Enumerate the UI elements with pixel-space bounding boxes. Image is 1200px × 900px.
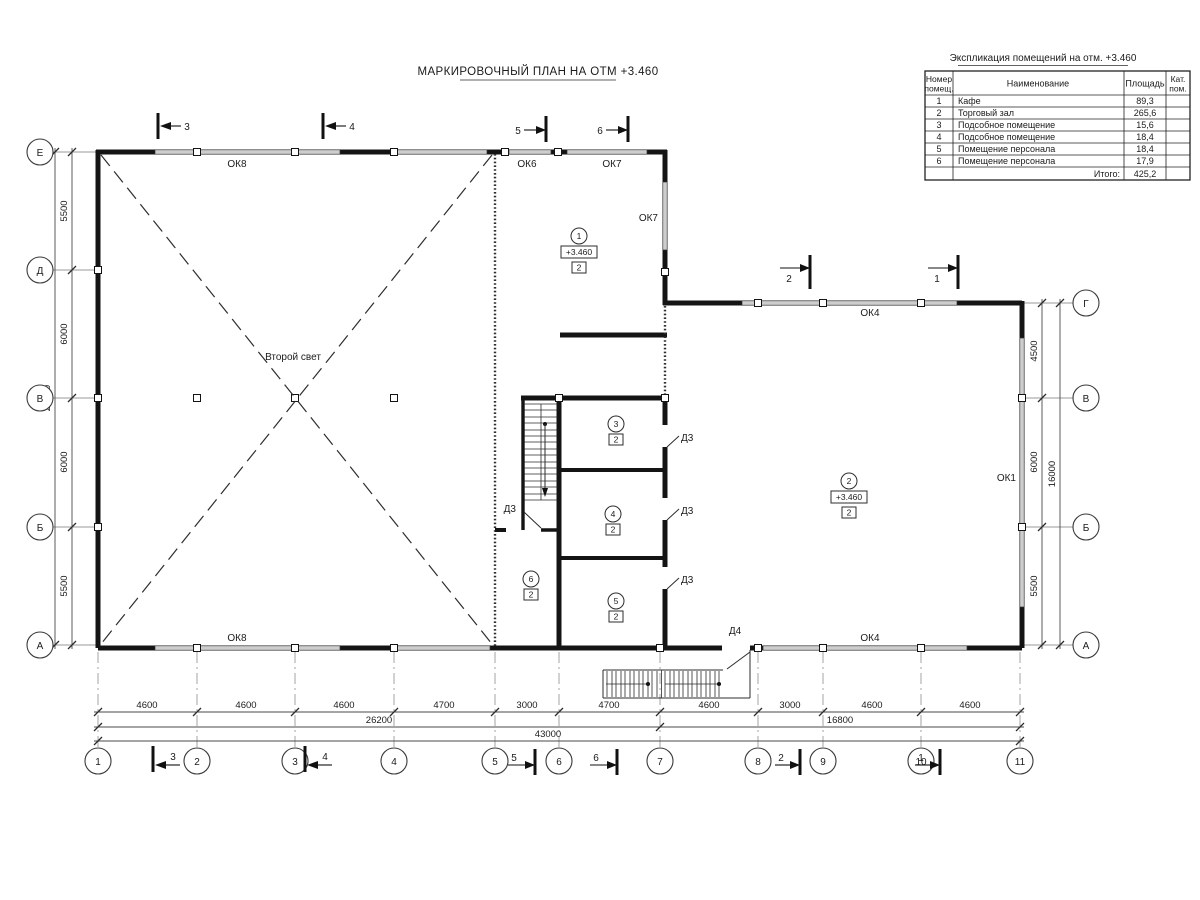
room2-number: 2: [847, 476, 852, 486]
total-label: Итого:: [1094, 169, 1120, 179]
axis-bubbles: Е Д В Б А Г В Б А 1 2 3 4 5 6 7 8 9 10 1…: [27, 139, 1099, 774]
dim-bottom-8: 4600: [861, 700, 882, 711]
axis-bottom-0: 1: [95, 757, 101, 768]
section-bottom-5: 5: [511, 753, 517, 764]
door-d3-room3-label: Д3: [681, 433, 694, 444]
dimension-texts: 5500 6000 6000 5500 23000 4500 6000 5500…: [42, 200, 1058, 740]
room2-category: 2: [847, 508, 852, 518]
section-bottom-3: 3: [170, 752, 176, 763]
room-markers: 1 +3.460 2 2 +3.460 2 3 2 4 2: [523, 228, 867, 622]
dim-bottom-2: 4600: [333, 700, 354, 711]
total-value: 425,2: [1134, 169, 1157, 179]
col-name: Наименование: [1007, 79, 1069, 89]
row4-name: Подсобное помещение: [958, 132, 1055, 142]
dim-bottom-total: 43000: [535, 729, 561, 740]
row6-area: 17,9: [1136, 156, 1154, 166]
room6-number: 6: [529, 574, 534, 584]
section-marks: 3 4 5 6 2 1 3 4 5 6 2 1: [153, 113, 958, 775]
table-row: 5 Помещение персонала 18,4: [936, 144, 1153, 154]
dim-left-0: 5500: [59, 200, 70, 221]
interior-stair: [525, 404, 558, 500]
window-ok4-top-label: ОК4: [860, 308, 880, 319]
section-bottom-6: 6: [593, 753, 599, 764]
row1-area: 89,3: [1136, 96, 1154, 106]
section-bottom-2: 2: [778, 753, 784, 764]
dim-bottom-6: 4600: [698, 700, 719, 711]
room4-number: 4: [611, 509, 616, 519]
axis-bottom-10: 11: [1015, 757, 1026, 768]
row5-name: Помещение персонала: [958, 144, 1055, 154]
axis-bottom-2: 3: [292, 757, 298, 768]
second-light-label: Второй свет: [265, 352, 321, 363]
dim-left-1: 6000: [59, 323, 70, 344]
dim-bottom-0: 4600: [136, 700, 157, 711]
dim-right-total: 16000: [1047, 461, 1058, 487]
section-bottom-4: 4: [322, 752, 328, 763]
axis-right-2: Б: [1083, 523, 1090, 534]
axis-left-4: А: [37, 641, 44, 652]
explication-title: Экспликация помещений на отм. +3.460: [950, 53, 1137, 64]
room3-category: 2: [614, 435, 619, 445]
drawing-title: МАРКИРОВОЧНЫЙ ПЛАН НА ОТМ +3.460: [417, 65, 658, 80]
col-cat-line1: Кат.: [1171, 74, 1186, 84]
window-ok7-side-label: ОК7: [639, 213, 659, 224]
axis-right-1: В: [1083, 394, 1090, 405]
dim-bottom-3: 4700: [433, 700, 454, 711]
table-row: 6 Помещение персонала 17,9: [936, 156, 1153, 166]
section-top-4: 4: [349, 122, 355, 133]
table-total-row: Итого: 425,2: [1094, 169, 1156, 179]
section-right-2: 2: [786, 274, 792, 285]
table-row: 3 Подсобное помещение 15,6: [936, 120, 1153, 130]
dim-left-2: 6000: [59, 451, 70, 472]
axis-left-2: В: [37, 394, 44, 405]
room2-elevation: +3.460: [836, 492, 863, 502]
axis-left-0: Е: [37, 148, 44, 159]
col-cat-line2: пом.: [1169, 84, 1187, 94]
section-top-5: 5: [515, 126, 521, 137]
row1-num: 1: [936, 96, 941, 106]
room-marker-2: 2 +3.460 2: [831, 473, 867, 518]
room6-category: 2: [529, 590, 534, 600]
section-right-1: 1: [934, 274, 940, 285]
table-row: 2 Торговый зал 265,6: [936, 108, 1156, 118]
door-d4-label: Д4: [729, 626, 742, 637]
row5-num: 5: [936, 144, 941, 154]
dim-right-2: 5500: [1029, 575, 1040, 596]
dim-right-0: 4500: [1029, 340, 1040, 361]
axis-right-3: А: [1083, 641, 1090, 652]
window-ok4-bottom-label: ОК4: [860, 633, 880, 644]
room5-category: 2: [614, 612, 619, 622]
room1-category: 2: [577, 263, 582, 273]
room-marker-5: 5 2: [608, 593, 624, 622]
axis-bottom-6: 7: [657, 757, 663, 768]
row4-num: 4: [936, 132, 941, 142]
row2-num: 2: [936, 108, 941, 118]
col-number-line1: Номер: [926, 74, 952, 84]
plan-title: МАРКИРОВОЧНЫЙ ПЛАН НА ОТМ +3.460: [417, 65, 658, 78]
table-row: 1 Кафе 89,3: [936, 96, 1153, 106]
window-ok8-bottom-label: ОК8: [227, 633, 247, 644]
row6-name: Помещение персонала: [958, 156, 1055, 166]
axis-left-3: Б: [37, 523, 44, 534]
dim-bottom-1: 4600: [235, 700, 256, 711]
dim-bottom-4: 3000: [516, 700, 537, 711]
axis-bottom-8: 9: [820, 757, 826, 768]
axis-bottom-3: 4: [391, 757, 397, 768]
col-area: Площадь: [1125, 79, 1164, 89]
row2-area: 265,6: [1134, 108, 1157, 118]
row2-name: Торговый зал: [958, 108, 1014, 118]
window-ok6-label: ОК6: [517, 159, 537, 170]
row5-area: 18,4: [1136, 144, 1154, 154]
exterior-stair: [603, 650, 750, 698]
col-number-line2: помещ.: [924, 84, 953, 94]
window-ok7-top-label: ОК7: [602, 159, 622, 170]
section-top-3: 3: [184, 122, 190, 133]
door-d3-room4-label: Д3: [681, 506, 694, 517]
room3-number: 3: [614, 419, 619, 429]
room5-number: 5: [614, 596, 619, 606]
dim-bottom-7: 3000: [779, 700, 800, 711]
axis-left-1: Д: [37, 266, 44, 277]
axis-bottom-7: 8: [755, 757, 761, 768]
row3-num: 3: [936, 120, 941, 130]
row6-num: 6: [936, 156, 941, 166]
explication-table: Экспликация помещений на отм. +3.460 Ном…: [924, 53, 1190, 180]
room1-elevation: +3.460: [566, 247, 593, 257]
dim-left-3: 5500: [59, 575, 70, 596]
room-marker-1: 1 +3.460 2: [561, 228, 597, 273]
dim-bottom-5: 4700: [598, 700, 619, 711]
axis-grid-lines: [53, 152, 1073, 747]
dim-bottom-sub-1: 16800: [827, 715, 853, 726]
section-bottom-1: 1: [918, 753, 924, 764]
room-marker-3: 3 2: [608, 416, 624, 445]
floor-plan-svg: 5500 6000 6000 5500 23000 4500 6000 5500…: [0, 0, 1200, 900]
room-marker-6: 6 2: [523, 571, 539, 600]
axis-right-0: Г: [1083, 299, 1089, 310]
table-row: 4 Подсобное помещение 18,4: [936, 132, 1153, 142]
row1-name: Кафе: [958, 96, 981, 106]
window-labels: ОК8 ОК6 ОК7 ОК7 ОК4 ОК1 ОК8 ОК4: [227, 159, 1016, 644]
axis-bottom-4: 5: [492, 757, 498, 768]
axis-bottom-5: 6: [556, 757, 562, 768]
axis-bottom-1: 2: [194, 757, 200, 768]
row3-area: 15,6: [1136, 120, 1154, 130]
window-ok1-label: ОК1: [997, 473, 1017, 484]
row4-area: 18,4: [1136, 132, 1154, 142]
dim-bottom-sub-0: 26200: [366, 715, 392, 726]
door-d3-room5-label: Д3: [681, 575, 694, 586]
room-marker-4: 4 2: [605, 506, 621, 535]
room1-number: 1: [577, 231, 582, 241]
dim-bottom-9: 4600: [959, 700, 980, 711]
dim-right-1: 6000: [1029, 451, 1040, 472]
door-d3-room6-label: Д3: [504, 504, 517, 515]
row3-name: Подсобное помещение: [958, 120, 1055, 130]
window-ok8-top-label: ОК8: [227, 159, 247, 170]
section-top-6: 6: [597, 126, 603, 137]
room4-category: 2: [611, 525, 616, 535]
drawing-sheet: 5500 6000 6000 5500 23000 4500 6000 5500…: [0, 0, 1200, 900]
